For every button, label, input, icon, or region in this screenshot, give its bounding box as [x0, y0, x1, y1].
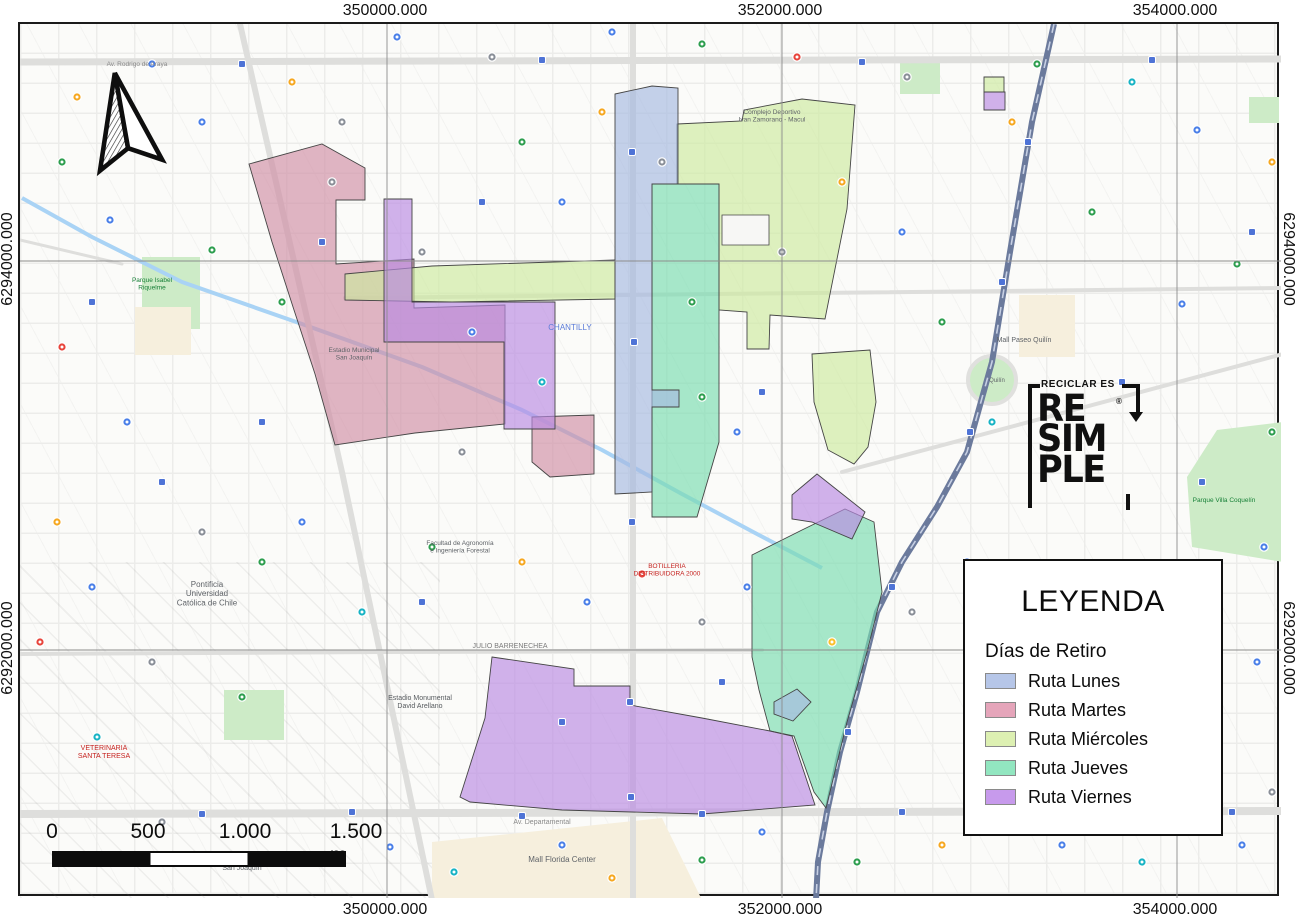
logo-registered-mark: ®: [1116, 397, 1122, 406]
map-pin-icon: [1058, 841, 1066, 849]
legend-item-ruta-martes: Ruta Martes: [985, 700, 1221, 720]
grid-label-left-2: 6292000.000: [0, 583, 16, 713]
legend-swatch: [985, 731, 1016, 747]
map-pin-icon: [698, 393, 706, 401]
transit-stop-icon: [845, 729, 852, 736]
map-pin-icon: [558, 198, 566, 206]
legend-item-ruta-viernes: Ruta Viernes: [985, 787, 1221, 807]
map-pin-icon: [908, 608, 916, 616]
map-pin-icon: [898, 228, 906, 236]
map-pin-icon: [298, 518, 306, 526]
map-pin-icon: [148, 658, 156, 666]
transit-stop-icon: [627, 699, 634, 706]
map-pin-icon: [1008, 118, 1016, 126]
legend-title: LEYENDA: [965, 585, 1221, 619]
map-label: CHANTILLY: [548, 323, 592, 332]
map-pin-icon: [698, 40, 706, 48]
transit-stop-icon: [89, 299, 96, 306]
map-pin-icon: [558, 841, 566, 849]
grid-label-right-1: 6294000.000: [1280, 194, 1296, 324]
map-pin-icon: [58, 343, 66, 351]
map-label: PontificiaUniversidadCatólica de Chile: [177, 580, 238, 607]
transit-stop-icon: [859, 59, 866, 66]
map-pin-icon: [88, 583, 96, 591]
legend-swatch: [985, 760, 1016, 776]
transit-stop-icon: [1229, 809, 1236, 816]
map-pin-icon: [1260, 543, 1268, 551]
transit-stop-icon: [1025, 139, 1032, 146]
grid-label-bottom-1: 350000.000: [320, 901, 450, 919]
transit-stop-icon: [159, 479, 166, 486]
legend-item-ruta-jueves: Ruta Jueves: [985, 758, 1221, 778]
grid-label-top-2: 352000.000: [715, 2, 845, 20]
map-pin-icon: [698, 856, 706, 864]
map-pin-icon: [468, 328, 476, 336]
logo-wordmark: RESIMPLE: [1037, 394, 1106, 485]
map-label: Quilín: [989, 378, 1005, 384]
map-pin-icon: [1193, 126, 1201, 134]
map-pin-icon: [828, 638, 836, 646]
logo-word-line: PLE: [1037, 455, 1106, 485]
map-pin-icon: [328, 178, 336, 186]
map-pin-icon: [1253, 658, 1261, 666]
transit-stop-icon: [559, 719, 566, 726]
map-pin-icon: [538, 378, 546, 386]
map-pin-icon: [458, 448, 466, 456]
transit-stop-icon: [319, 239, 326, 246]
legend-items: Ruta LunesRuta MartesRuta MiércolesRuta …: [965, 671, 1221, 807]
map-pin-icon: [278, 298, 286, 306]
transit-stop-icon: [889, 584, 896, 591]
grid-label-bottom-3: 354000.000: [1110, 901, 1240, 919]
transit-stop-icon: [967, 429, 974, 436]
map-pin-icon: [258, 558, 266, 566]
legend-item-ruta-miércoles: Ruta Miércoles: [985, 729, 1221, 749]
transit-stop-icon: [1199, 479, 1206, 486]
map-pin-icon: [518, 558, 526, 566]
grid-label-top-1: 350000.000: [320, 2, 450, 20]
transit-stop-icon: [349, 809, 356, 816]
map-pin-icon: [658, 158, 666, 166]
map-pin-icon: [608, 874, 616, 882]
transit-stop-icon: [759, 389, 766, 396]
map-pin-icon: [1268, 788, 1276, 796]
map-label: Mall Paseo Quilín: [997, 337, 1052, 344]
map-pin-icon: [518, 138, 526, 146]
grid-label-bottom-2: 352000.000: [715, 901, 845, 919]
map-pin-icon: [238, 693, 246, 701]
grid-label-top-3: 354000.000: [1110, 2, 1240, 20]
logo-bracket-arrow-stem: [1136, 384, 1140, 414]
map-pin-icon: [733, 428, 741, 436]
map-label: Av. Departamental: [513, 819, 571, 826]
map-pin-icon: [853, 858, 861, 866]
legend-subtitle: Días de Retiro: [985, 641, 1221, 663]
map-pin-icon: [208, 246, 216, 254]
map-label: Parque Villa Coquelín: [1193, 497, 1256, 504]
scalebar-label-0: 0: [46, 820, 58, 844]
map-pin-icon: [598, 108, 606, 116]
map-pin-icon: [903, 73, 911, 81]
map-pin-icon: [1138, 858, 1146, 866]
transit-stop-icon: [899, 809, 906, 816]
logo-arrow-down-icon: [1129, 412, 1143, 422]
legend-label: Ruta Jueves: [1028, 758, 1128, 779]
transit-stop-icon: [259, 419, 266, 426]
map-label: VETERINARIASANTA TERESA: [78, 745, 131, 760]
map-pin-icon: [938, 318, 946, 326]
map-pin-icon: [58, 158, 66, 166]
transit-stop-icon: [1149, 57, 1156, 64]
north-arrow-icon: [76, 64, 172, 176]
map-pin-icon: [1178, 300, 1186, 308]
map-pin-icon: [393, 33, 401, 41]
map-pin-icon: [1268, 158, 1276, 166]
legend-swatch: [985, 789, 1016, 805]
legend-label: Ruta Viernes: [1028, 787, 1132, 808]
map-label: Estadio MonumentalDavid Arellano: [388, 695, 452, 710]
scalebar-bar: [52, 851, 346, 867]
grid-label-left-1: 6294000.000: [0, 194, 16, 324]
map-pin-icon: [743, 583, 751, 591]
resimple-logo: RECICLAR ES ® RESIMPLE: [1028, 370, 1146, 512]
map-pin-icon: [1238, 841, 1246, 849]
legend-label: Ruta Lunes: [1028, 671, 1120, 692]
map-pin-icon: [793, 53, 801, 61]
map-pin-icon: [988, 418, 996, 426]
map-pin-icon: [93, 733, 101, 741]
transit-stop-icon: [1249, 229, 1256, 236]
map-pin-icon: [418, 248, 426, 256]
transit-stop-icon: [239, 61, 246, 68]
map-label: Complejo DeportivoIvan Zamorano - Macul: [739, 109, 806, 123]
map-pin-icon: [338, 118, 346, 126]
map-pin-icon: [198, 118, 206, 126]
map-pin-icon: [36, 638, 44, 646]
map-pin-icon: [106, 216, 114, 224]
grid-label-right-2: 6292000.000: [1280, 583, 1296, 713]
map-export-page: { "grid": { "x_ticks": ["350000.000", "3…: [0, 0, 1296, 920]
legend-box: LEYENDA Días de Retiro Ruta LunesRuta Ma…: [963, 559, 1223, 836]
map-pin-icon: [53, 518, 61, 526]
map-pin-icon: [198, 528, 206, 536]
map-pin-icon: [583, 598, 591, 606]
transit-stop-icon: [629, 149, 636, 156]
transit-stop-icon: [199, 811, 206, 818]
transit-stop-icon: [479, 199, 486, 206]
transit-stop-icon: [419, 599, 426, 606]
legend-label: Ruta Martes: [1028, 700, 1126, 721]
legend-swatch: [985, 673, 1016, 689]
legend-item-ruta-lunes: Ruta Lunes: [985, 671, 1221, 691]
map-pin-icon: [450, 868, 458, 876]
map-pin-icon: [698, 618, 706, 626]
transit-stop-icon: [628, 794, 635, 801]
map-pin-icon: [288, 78, 296, 86]
logo-bracket-bottom-right: [1126, 494, 1130, 510]
map-label: Facultad de Agronomíae Ingeniería Forest…: [426, 540, 494, 554]
map-pin-icon: [488, 53, 496, 61]
map-label: JULIO BARRENECHEA: [472, 643, 547, 650]
legend-label: Ruta Miércoles: [1028, 729, 1148, 750]
scalebar-label-1000: 1.000: [219, 820, 272, 844]
transit-stop-icon: [719, 679, 726, 686]
transit-stop-icon: [631, 339, 638, 346]
map-label: Mall Florida Center: [528, 855, 596, 864]
map-pin-icon: [938, 841, 946, 849]
map-pin-icon: [838, 178, 846, 186]
transit-stop-icon: [539, 57, 546, 64]
legend-swatch: [985, 702, 1016, 718]
map-pin-icon: [123, 418, 131, 426]
map-pin-icon: [758, 828, 766, 836]
map-pin-icon: [1033, 60, 1041, 68]
map-label: BOTILLERIADISTRIBUIDORA 2000: [634, 563, 701, 577]
transit-stop-icon: [629, 519, 636, 526]
logo-bracket-left: [1028, 384, 1032, 508]
map-pin-icon: [608, 28, 616, 36]
map-pin-icon: [358, 608, 366, 616]
transit-stop-icon: [999, 279, 1006, 286]
transit-stop-icon: [699, 811, 706, 818]
scalebar-label-500: 500: [130, 820, 165, 844]
map-pin-icon: [1268, 428, 1276, 436]
map-pin-icon: [1128, 78, 1136, 86]
map-pin-icon: [688, 298, 696, 306]
map-pin-icon: [1088, 208, 1096, 216]
